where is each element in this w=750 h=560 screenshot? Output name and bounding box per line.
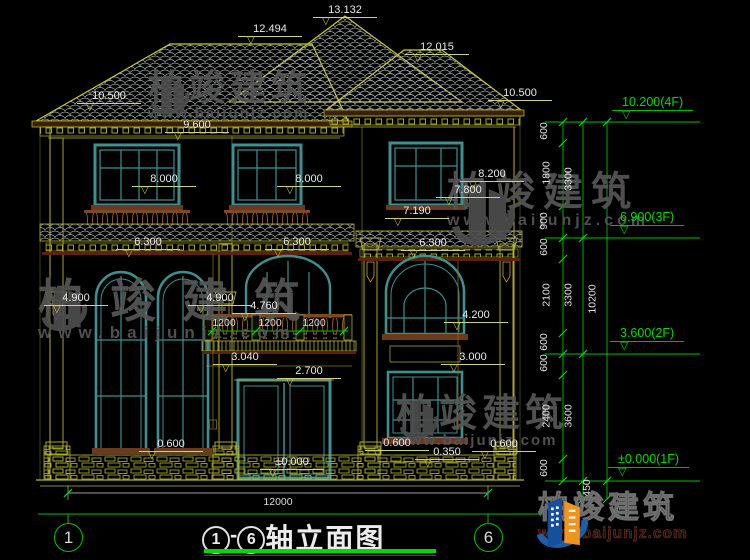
level-triangle-icon: ▽ xyxy=(125,250,180,258)
storey-level-marker: 6.900(3F)▽ xyxy=(610,211,684,235)
level-triangle-icon: ▽ xyxy=(497,101,552,109)
title-underline xyxy=(204,549,436,553)
dimension-label: 1200 xyxy=(202,317,246,329)
dimension-label: 6.300▽ xyxy=(265,236,329,258)
level-triangle-icon: ▽ xyxy=(141,187,196,195)
dimension-labels-layer: 13.132▽12.494▽12.015▽10.500▽10.500▽9.600… xyxy=(0,0,750,560)
storey-level-marker: 10.200(4F)▽ xyxy=(612,96,693,120)
level-triangle-icon: ▽ xyxy=(322,18,377,26)
dimension-label: 3.040▽ xyxy=(213,351,277,373)
level-triangle-icon: ▽ xyxy=(481,452,536,460)
level-triangle-icon: ▽ xyxy=(622,111,693,120)
chain-dimension-label: 600 xyxy=(538,459,550,477)
dimension-label: 0.600▽ xyxy=(139,438,203,460)
dimension-label: 12.494▽ xyxy=(238,23,302,45)
level-triangle-icon: ▽ xyxy=(247,37,302,45)
dimension-label: 8.000▽ xyxy=(277,173,341,195)
chain-dimension-label: 3300 xyxy=(563,167,575,190)
level-triangle-icon: ▽ xyxy=(53,306,108,314)
level-triangle-icon: ▽ xyxy=(620,226,684,235)
dimension-label: 7.190▽ xyxy=(385,205,449,227)
dimension-label: 1200 xyxy=(248,317,292,329)
level-triangle-icon: ▽ xyxy=(414,55,469,63)
level-triangle-icon: ▽ xyxy=(86,104,141,112)
level-triangle-icon: ▽ xyxy=(286,187,341,195)
storey-level-marker: ±0.000(1F)▽ xyxy=(608,453,689,477)
chain-dimension-label: 600 xyxy=(538,354,550,372)
dimension-label: 6.300▽ xyxy=(116,236,180,258)
axis-bubble-6: 6 xyxy=(474,523,503,552)
dimension-label: 4.200▽ xyxy=(444,309,508,331)
title-separator: - xyxy=(230,522,237,547)
dimension-label: 10.500▽ xyxy=(488,87,552,109)
dimension-label: 6.300▽ xyxy=(401,237,465,259)
level-triangle-icon: ▽ xyxy=(222,365,277,373)
level-triangle-icon: ▽ xyxy=(269,470,324,478)
chain-dimension-label: 600 xyxy=(538,333,550,351)
dimension-label: 9.600▽ xyxy=(165,119,229,141)
level-triangle-icon: ▽ xyxy=(618,468,689,477)
level-triangle-icon: ▽ xyxy=(445,198,500,206)
dimension-label: 8.000▽ xyxy=(132,173,196,195)
level-triangle-icon: ▽ xyxy=(394,219,449,227)
cad-elevation-canvas: 柏竣建筑 www.baijunjz.com 柏竣建筑 www.baijunjz.… xyxy=(0,0,750,560)
level-triangle-icon: ▽ xyxy=(148,452,203,460)
chain-dimension-label: 600 xyxy=(538,238,550,256)
level-triangle-icon: ▽ xyxy=(620,342,684,351)
chain-dimension-label: 2100 xyxy=(541,283,553,306)
chain-dimension-label: 2400 xyxy=(541,404,553,427)
dimension-label: 10.500▽ xyxy=(77,90,141,112)
level-triangle-icon: ▽ xyxy=(450,365,505,373)
dimension-label: 13.132▽ xyxy=(313,4,377,26)
chain-dimension-label: 1800 xyxy=(541,161,553,184)
level-triangle-icon: ▽ xyxy=(286,379,341,387)
dimension-label: 12000 xyxy=(256,496,300,508)
level-triangle-icon: ▽ xyxy=(174,133,229,141)
level-triangle-icon: ▽ xyxy=(424,460,479,468)
brand-logo: 柏竣建筑 www.baijunjz.com xyxy=(532,492,688,543)
dimension-label: 0.350▽ xyxy=(415,446,479,468)
chain-dimension-label: 3300 xyxy=(563,283,575,306)
chain-dimension-label: 900 xyxy=(538,212,550,230)
dimension-label: 3.000▽ xyxy=(441,351,505,373)
level-triangle-icon: ▽ xyxy=(410,251,465,259)
dimension-label: 0.600▽ xyxy=(472,438,536,460)
dimension-label: 4.900▽ xyxy=(44,292,108,314)
dimension-label: 1200 xyxy=(292,317,336,329)
storey-level-marker: 3.600(2F)▽ xyxy=(610,327,684,351)
chain-dimension-label: 10200 xyxy=(587,284,599,313)
chain-dimension-label: 3600 xyxy=(563,404,575,427)
brand-logo-icon xyxy=(532,492,590,554)
dimension-label: 12.015▽ xyxy=(405,41,469,63)
dimension-label: 7.800▽ xyxy=(436,184,500,206)
axis-bubble-1: 1 xyxy=(54,523,83,552)
dimension-label: ±0.000▽ xyxy=(260,456,324,478)
level-triangle-icon: ▽ xyxy=(453,323,508,331)
level-triangle-icon: ▽ xyxy=(274,250,329,258)
title-underline-thin xyxy=(204,555,436,556)
dimension-label: 2.700▽ xyxy=(277,365,341,387)
chain-dimension-label: 600 xyxy=(538,122,550,140)
